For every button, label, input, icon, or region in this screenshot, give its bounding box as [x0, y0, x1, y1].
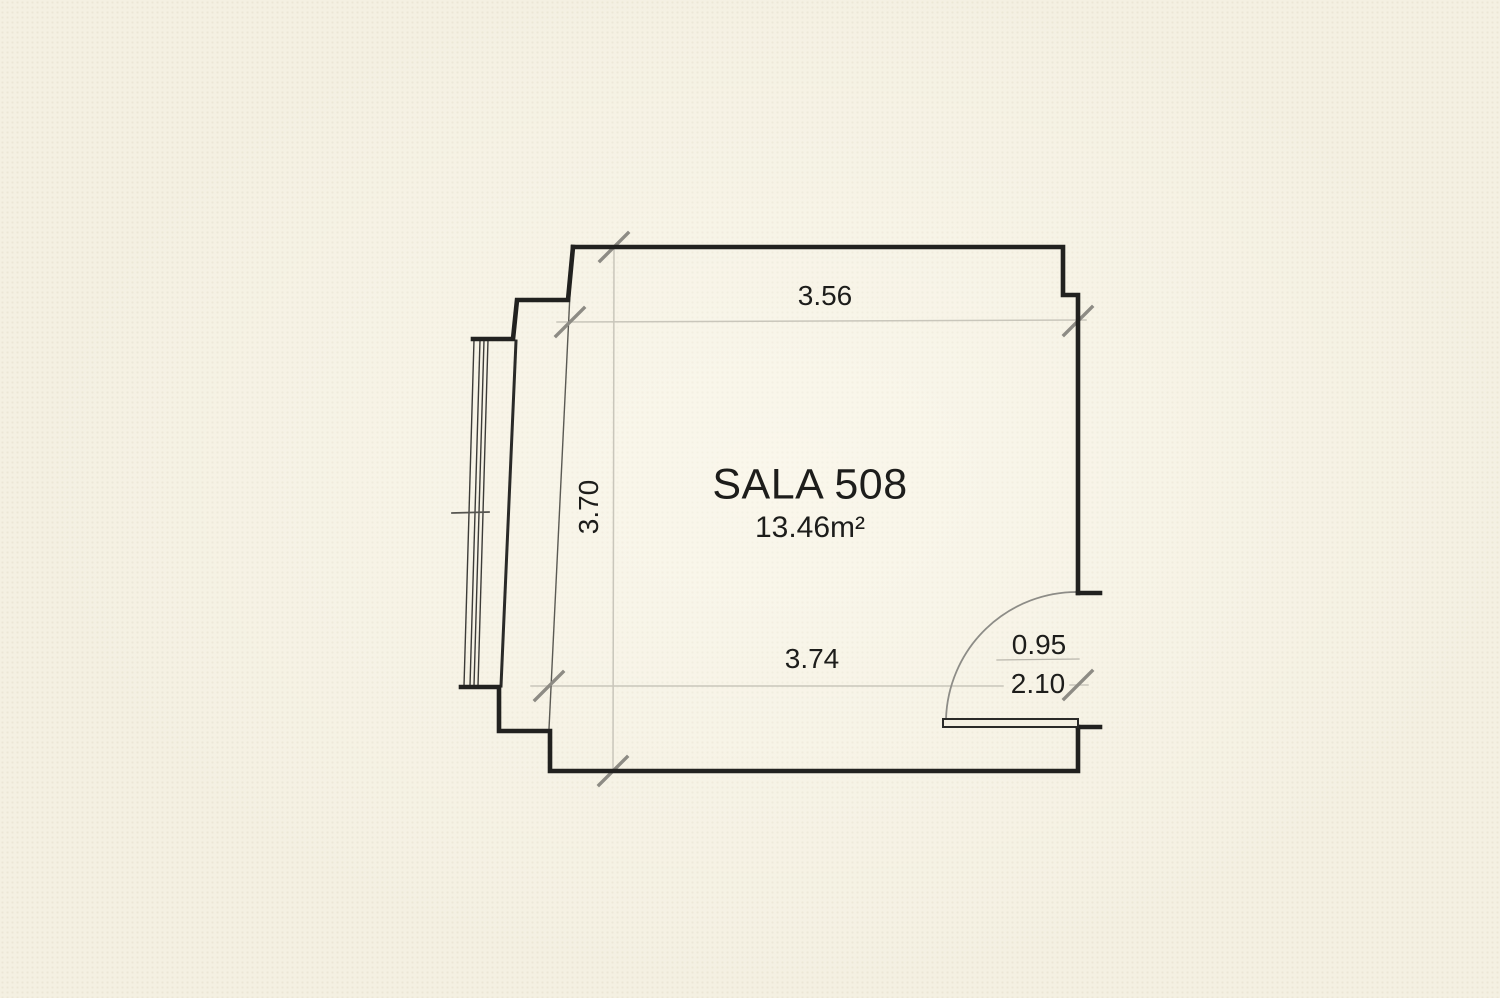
door-width-label: 0.95: [1012, 631, 1067, 659]
interior-wall-line: [501, 341, 516, 686]
vertical-extension-line: [613, 247, 614, 771]
wall-left-top-steps: [473, 247, 573, 339]
dim-left-height-label: 3.70: [575, 480, 603, 535]
room-area-label: 13.46m²: [755, 513, 865, 543]
exterior-walls: [461, 247, 1100, 771]
dimension-lines: [531, 247, 1088, 771]
wall-bottom-and-left-steps: [461, 687, 1078, 771]
door-leaf: [943, 719, 1078, 727]
door-height-label: 2.10: [1011, 670, 1066, 698]
window-glazing: [452, 340, 489, 686]
floor-plan-canvas: SALA 508 13.46m² 3.56 3.70 3.74 0.95 2.1…: [0, 0, 1500, 998]
dimension-ticks: [535, 233, 1092, 785]
dim-top-width-label: 3.56: [798, 282, 853, 310]
dim-bottom-width-label: 3.74: [785, 645, 840, 673]
dim-line-top-width: [557, 320, 1086, 322]
room-name-label: SALA 508: [712, 464, 907, 507]
window-mullion-tick: [452, 512, 489, 513]
